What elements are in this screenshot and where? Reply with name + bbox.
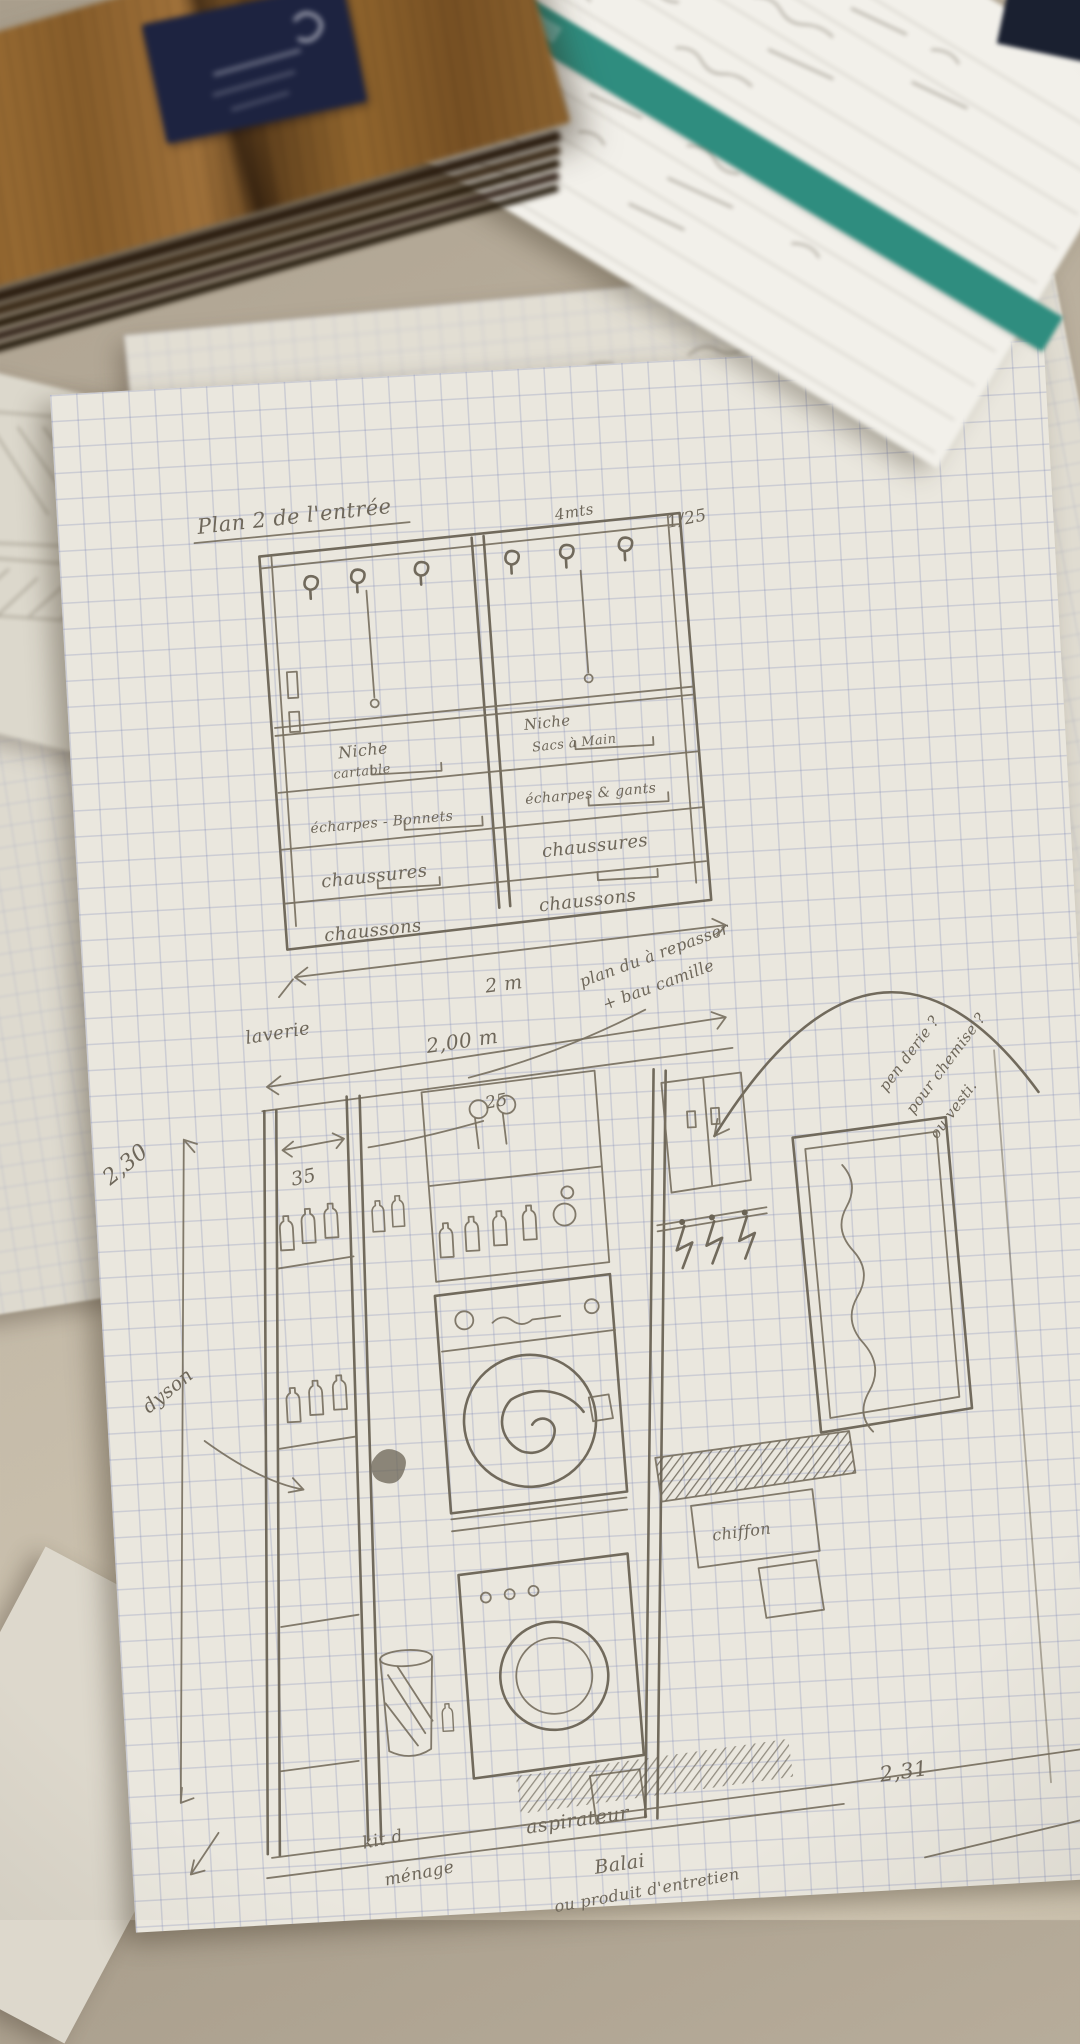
- products-label: ou produit d'entretien: [553, 1864, 741, 1916]
- dim-35: 35: [289, 1164, 318, 1190]
- label-niche-right-2: Sacs à Main: [531, 732, 617, 756]
- sketch-note: 4mts: [553, 500, 595, 524]
- label-niche-left-1: Niche: [336, 738, 389, 762]
- label-shoes-right: chaussures: [541, 830, 649, 862]
- laundry-sketch: laverie 2,00 m plan du à repasser + bau …: [85, 900, 1080, 1940]
- sketch-title: Plan 2 de l'entrée: [195, 494, 393, 539]
- label-slippers-right: chaussons: [538, 885, 637, 916]
- label-niche-right-1: Niche: [522, 711, 572, 734]
- main-sketch-sheet: Plan 2 de l'entrée 4mts 1/25 Niche carta…: [50, 339, 1080, 1932]
- penderie-note-2: pour chemise ?: [902, 1009, 989, 1117]
- sketch-scale: 1/25: [665, 505, 708, 532]
- label-niche-left-2: cartable: [333, 762, 392, 783]
- vacuum-note: dyson: [138, 1364, 197, 1418]
- pencil-sketches: Plan 2 de l'entrée 4mts 1/25 Niche carta…: [50, 339, 1080, 1932]
- cloth-label: chiffon: [711, 1519, 772, 1545]
- wardrobe-width-dim: 2 m: [483, 971, 524, 998]
- wardrobe-sketch: Plan 2 de l'entrée 4mts 1/25 Niche carta…: [192, 476, 734, 1012]
- photo-scene: { "colors": { "form_teal": "#2f8d7f", "l…: [0, 0, 1080, 1920]
- broom-label: Balai: [592, 1850, 646, 1879]
- label-scarves-left: écharpes - Bonnets: [310, 808, 454, 837]
- label-slippers-left: chaussons: [323, 915, 422, 946]
- label-shoes-left: chaussures: [320, 860, 428, 892]
- bottom-width-dim: 2,31: [877, 1756, 929, 1787]
- room-label: laverie: [244, 1018, 312, 1049]
- height-dim: 2,30: [97, 1139, 153, 1191]
- label-scarves-right: écharpes & gants: [524, 780, 656, 808]
